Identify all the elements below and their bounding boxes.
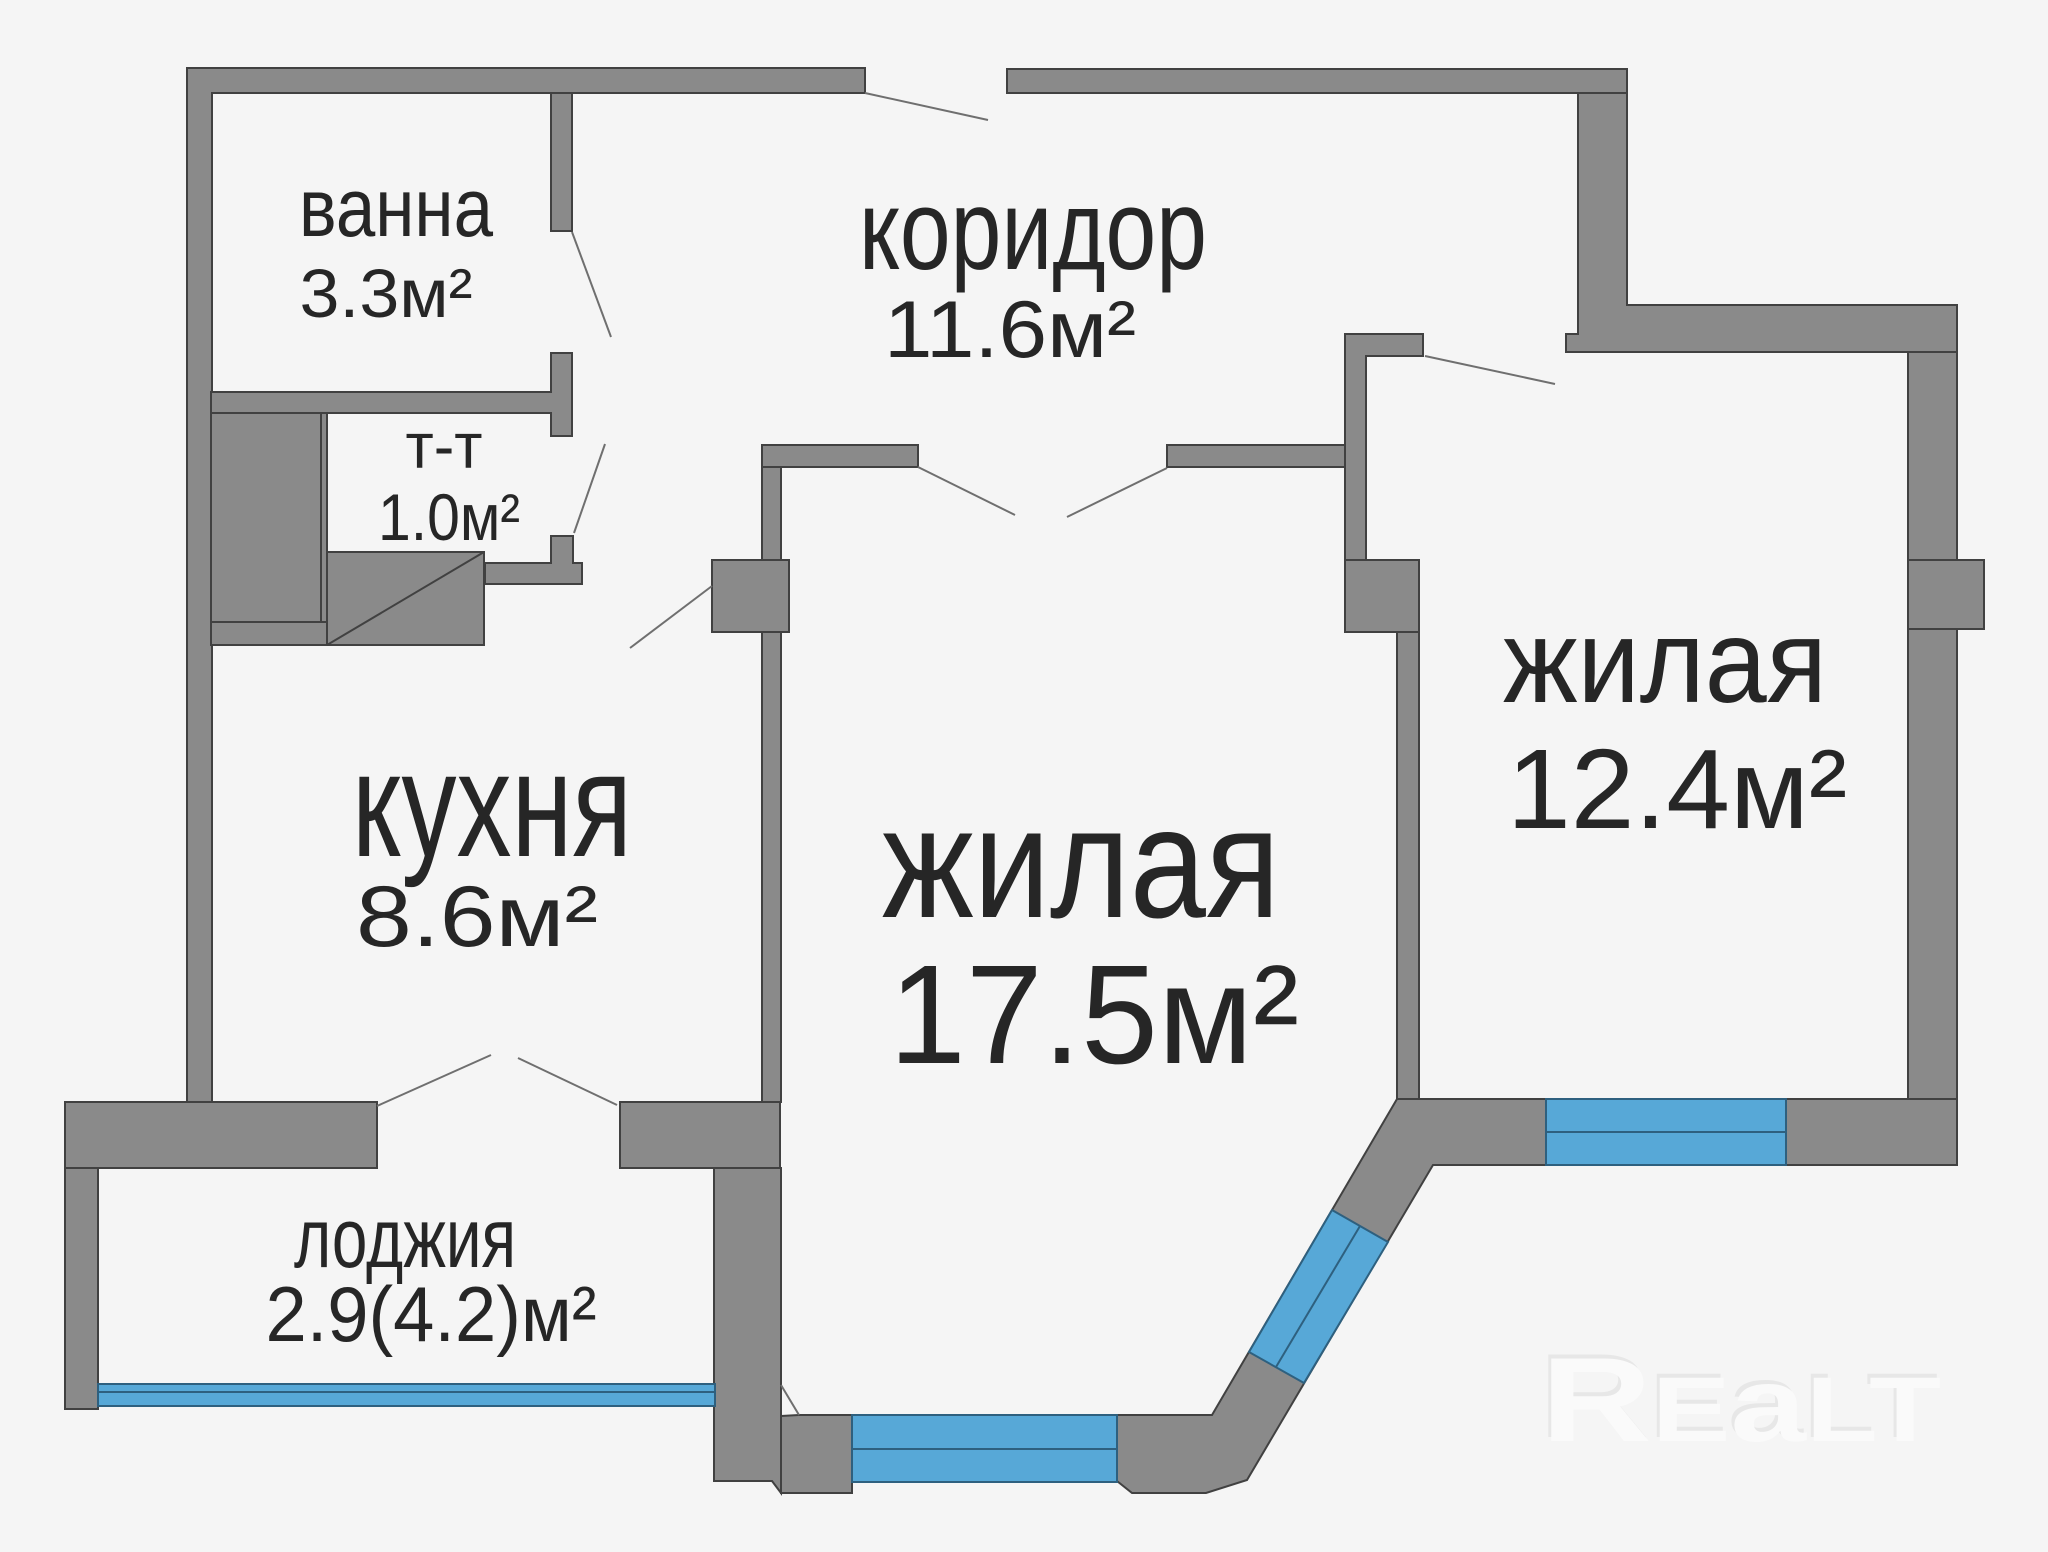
svg-text:11.6м²: 11.6м² (884, 285, 1136, 375)
svg-text:т-т: т-т (406, 410, 483, 482)
svg-text:жилая: жилая (882, 775, 1280, 951)
svg-text:2.9(4.2)м²: 2.9(4.2)м² (266, 1270, 597, 1358)
svg-text:1.0м²: 1.0м² (378, 480, 520, 554)
svg-text:ванна: ванна (299, 161, 494, 254)
svg-text:12.4м²: 12.4м² (1507, 726, 1847, 852)
svg-text:17.5м²: 17.5м² (889, 935, 1299, 1093)
svg-text:8.6м²: 8.6м² (356, 869, 598, 965)
svg-text:коридор: коридор (859, 167, 1207, 294)
svg-text:кухня: кухня (352, 720, 632, 888)
svg-text:3.3м²: 3.3м² (300, 255, 473, 332)
svg-text:жилая: жилая (1503, 595, 1827, 728)
